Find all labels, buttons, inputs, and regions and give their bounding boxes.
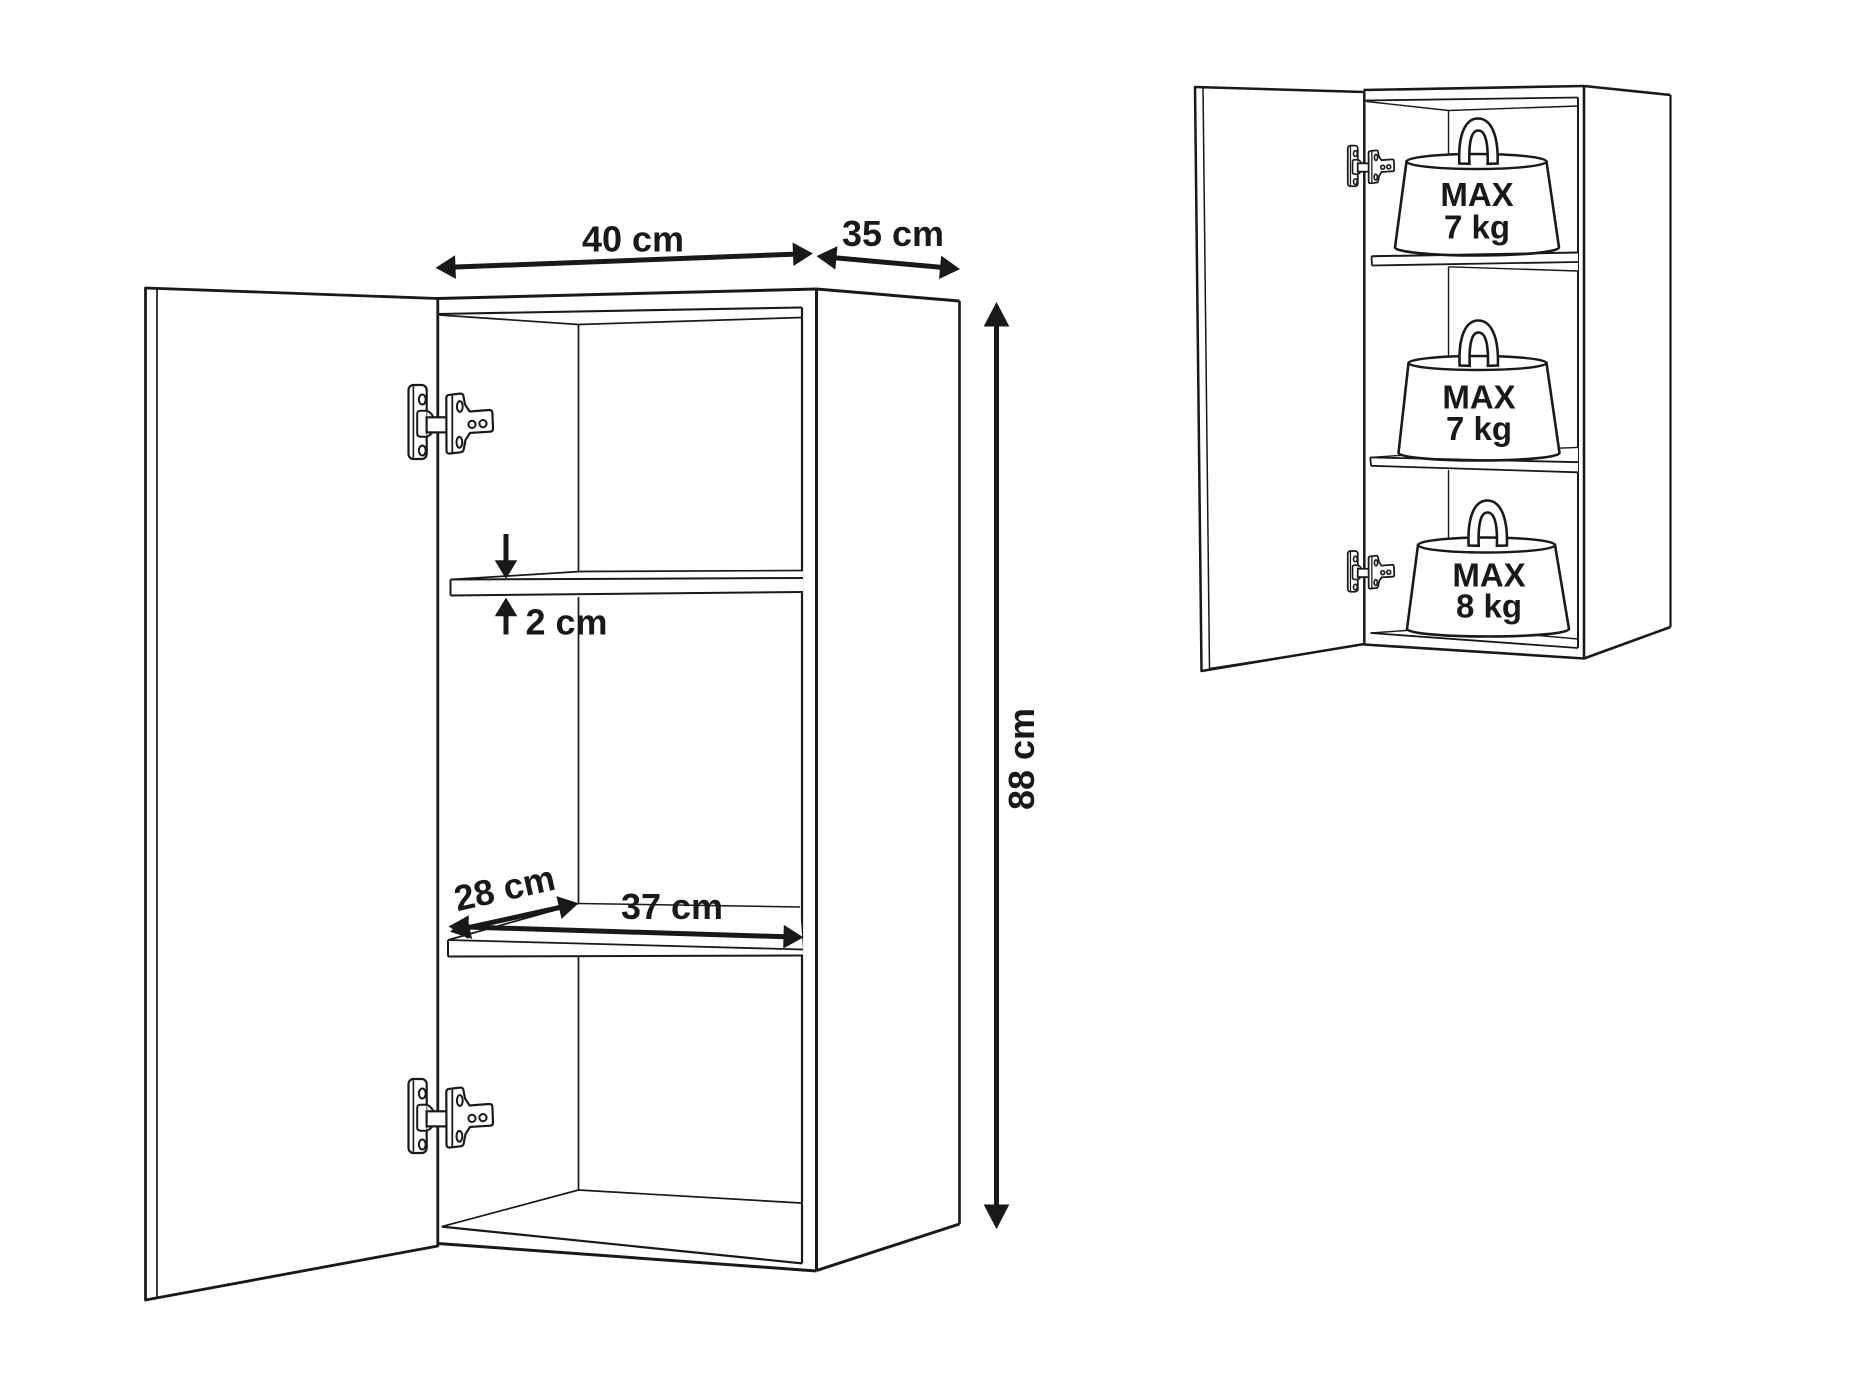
- svg-text:7 kg: 7 kg: [1444, 209, 1510, 246]
- svg-text:MAX: MAX: [1440, 176, 1513, 213]
- svg-text:2 cm: 2 cm: [525, 602, 607, 643]
- svg-text:40 cm: 40 cm: [582, 219, 684, 260]
- svg-text:7 kg: 7 kg: [1446, 410, 1512, 447]
- svg-text:35 cm: 35 cm: [842, 213, 944, 254]
- svg-text:88 cm: 88 cm: [1001, 708, 1042, 810]
- svg-text:8 kg: 8 kg: [1456, 588, 1522, 625]
- svg-text:37 cm: 37 cm: [621, 886, 723, 927]
